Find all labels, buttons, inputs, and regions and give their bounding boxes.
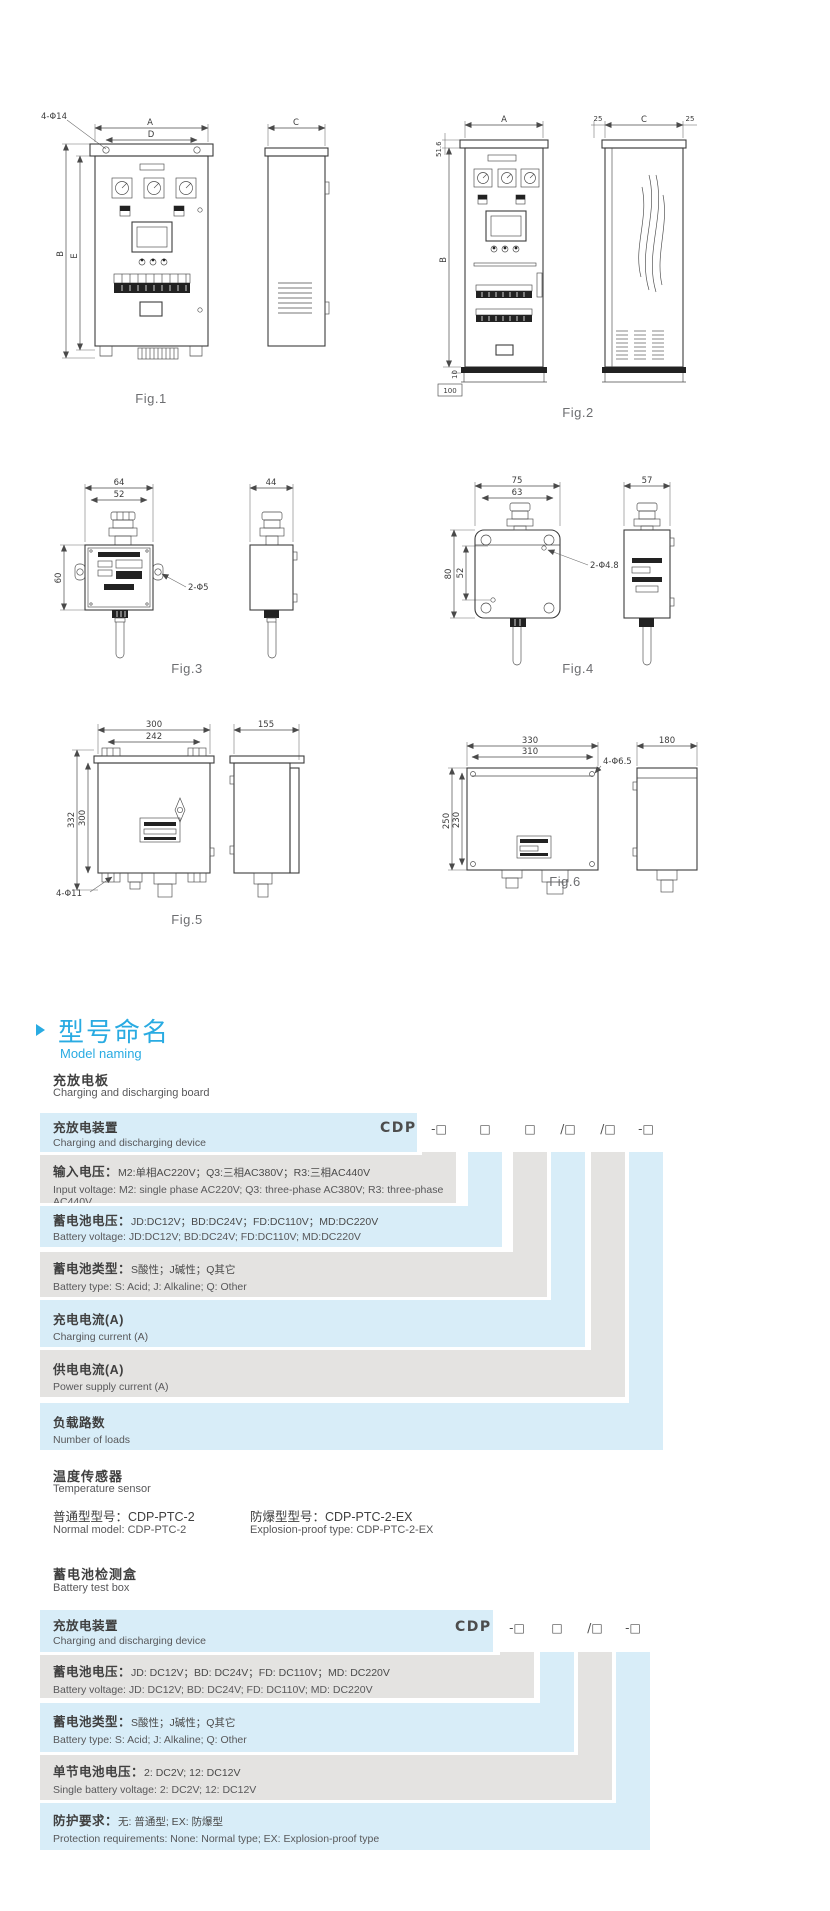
fig1-holes-label: 4-Φ14 [41, 112, 67, 122]
fig2-dim-top: 51.6 [435, 141, 443, 157]
board-row-loads: 负载路数 Number of loads [40, 1403, 663, 1450]
fig5-dim-w: 300 [146, 720, 162, 730]
fig4-dim-h: 80 [444, 569, 454, 580]
row-label-cn: 充电电流(A) [53, 1309, 585, 1328]
fig1-side-view: C [265, 118, 329, 346]
testbox-row-single-battery-voltage: 单节电池电压：2: DC2V; 12: DC12V Single battery… [40, 1755, 612, 1800]
board-code-symbol-4: /□ [554, 1122, 582, 1136]
row-label-en: Battery type: S: Acid; J: Alkaline; Q: O… [53, 1281, 547, 1293]
board-row-charging-current: 充电电流(A) Charging current (A) [40, 1300, 585, 1347]
testbox-code-symbol-4: -□ [619, 1621, 647, 1635]
ladder-strip [540, 1652, 574, 1703]
fig6-dim-w: 330 [522, 736, 538, 746]
ladder-strip [551, 1152, 585, 1300]
fig2-dim-b: B [439, 257, 449, 263]
fig6-dim-wi: 310 [522, 747, 538, 757]
row-label-en: Charging current (A) [53, 1331, 585, 1343]
row-line-cn: 单节电池电压：2: DC2V; 12: DC12V [53, 1761, 612, 1781]
row-label-cn: 蓄电池类型： [53, 1262, 131, 1276]
fig3-dim-wi: 52 [114, 490, 125, 500]
sensor-ex-model-cn: 防爆型型号：CDP-PTC-2-EX [250, 1506, 413, 1525]
fig4-dim-w: 75 [512, 476, 523, 486]
row-detail-cn: S酸性；J碱性；Q其它 [131, 1264, 235, 1276]
testbox-row-battery-type: 蓄电池类型：S酸性；J碱性；Q其它 Battery type: S: Acid;… [40, 1703, 574, 1752]
fig5-front-view: 300 242 332 300 [56, 720, 214, 899]
fig2-dim-100: 100 [443, 387, 456, 395]
row-line-cn: 输入电压：M2:单相AC220V；Q3:三相AC380V；R3:三相AC440V [53, 1161, 456, 1181]
testbox-code-symbol-1: -□ [503, 1621, 531, 1635]
fig1-panel-meters [112, 178, 196, 198]
ladder-strip [513, 1152, 547, 1252]
fig3-drawing: 64 52 60 [40, 466, 340, 684]
row-label-en: Charging and discharging device [53, 1635, 493, 1647]
fig2-dim-25r: 25 [686, 115, 695, 123]
fig3-dim-w: 64 [114, 478, 125, 488]
row-line-cn: 防护要求：无: 普通型; EX: 防爆型 [53, 1810, 650, 1830]
fig1-front-view: A D 4-Φ14 B E [41, 112, 213, 359]
ladder-strip [468, 1152, 502, 1206]
fig1-dim-a: A [147, 118, 153, 128]
board-code-prefix: CDP [380, 1120, 417, 1136]
fig4-dim-wi: 63 [512, 488, 523, 498]
fig6-caption: Fig.6 [530, 874, 600, 889]
ladder-strip [629, 1152, 663, 1403]
fig1-dim-b: B [56, 251, 66, 257]
fig4-caption: Fig.4 [543, 661, 613, 676]
fig4-dim-side: 57 [642, 476, 653, 486]
board-code-symbol-5: /□ [594, 1122, 622, 1136]
fig4-dim-hi: 52 [456, 568, 466, 579]
row-label-cn: 输入电压： [53, 1165, 118, 1179]
fig6-dim-side: 180 [659, 736, 675, 746]
row-label-cn: 蓄电池电压： [53, 1665, 131, 1679]
fig6-front-view: 330 310 250 230 4-Φ6.5 [442, 736, 632, 894]
fig5-dim-side: 155 [258, 720, 274, 730]
fig6-dim-h: 250 [442, 813, 452, 829]
board-row-battery-voltage: 蓄电池电压：JD:DC12V；BD:DC24V；FD:DC110V；MD:DC2… [40, 1206, 502, 1247]
fig2-caption: Fig.2 [543, 405, 613, 420]
board-row-battery-type: 蓄电池类型：S酸性；J碱性；Q其它 Battery type: S: Acid;… [40, 1252, 547, 1297]
fig4-drawing: 75 63 80 52 2-Φ [352, 466, 700, 684]
row-line-cn: 蓄电池类型：S酸性；J碱性；Q其它 [53, 1258, 547, 1278]
fig3-side-view: 44 [250, 478, 297, 658]
row-label-cn: 供电电流(A) [53, 1359, 625, 1378]
row-detail-cn: 2: DC2V; 12: DC12V [144, 1767, 241, 1779]
board-row-supply-current: 供电电流(A) Power supply current (A) [40, 1350, 625, 1397]
board-heading-en: Charging and discharging board [53, 1087, 210, 1099]
fig6-holes-label: 4-Φ6.5 [603, 757, 632, 767]
board-code-symbol-3: □ [516, 1122, 544, 1136]
row-label-cn: 蓄电池类型： [53, 1715, 131, 1729]
fig5-dim-wi: 242 [146, 732, 162, 742]
sensor-heading-en: Temperature sensor [53, 1483, 151, 1495]
fig5-side-view: 155 [230, 720, 304, 897]
fig5-holes-label: 4-Φ11 [56, 889, 82, 899]
sensor-normal-model-cn: 普通型型号：CDP-PTC-2 [53, 1506, 195, 1525]
ladder-strip [578, 1652, 612, 1755]
section-title-cn: 型号命名 [58, 1012, 170, 1049]
fig5-dim-hi: 300 [78, 810, 88, 826]
row-label-en: Battery type: S: Acid; J: Alkaline; Q: O… [53, 1734, 574, 1746]
fig2-dim-25l: 25 [594, 115, 603, 123]
row-label-en: Battery voltage: JD: DC12V; BD: DC24V; F… [53, 1684, 534, 1696]
testbox-code-prefix: CDP [455, 1619, 492, 1635]
datasheet-page: A D 4-Φ14 B E [0, 0, 830, 1911]
board-code-symbol-2: □ [471, 1122, 499, 1136]
row-label-en: Single battery voltage: 2: DC2V; 12: DC1… [53, 1784, 612, 1796]
testbox-code-symbol-2: □ [543, 1621, 571, 1635]
fig2-front-view: A 51.6 B 10 100 [435, 115, 548, 396]
ladder-strip [591, 1152, 625, 1350]
fig1-caption: Fig.1 [116, 391, 186, 406]
fig5-dim-h: 332 [67, 812, 77, 828]
row-detail-cn: 无: 普通型; EX: 防爆型 [118, 1816, 223, 1828]
fig2-dim-c: C [641, 115, 647, 125]
row-label-en: Battery voltage: JD:DC12V; BD:DC24V; FD:… [53, 1231, 502, 1243]
fig5-drawing: 300 242 332 300 [28, 698, 368, 926]
row-label-en: Power supply current (A) [53, 1381, 625, 1393]
row-detail-cn: S酸性；J碱性；Q其它 [131, 1717, 235, 1729]
row-label-en: Protection requirements: None: Normal ty… [53, 1833, 650, 1845]
row-detail-cn: JD: DC12V；BD: DC24V；FD: DC110V；MD: DC220… [131, 1667, 390, 1679]
board-code-symbol-1: -□ [425, 1122, 453, 1136]
fig6-drawing: 330 310 250 230 4-Φ6.5 [352, 726, 702, 906]
section-title-en: Model naming [60, 1046, 142, 1061]
row-label-en: Charging and discharging device [53, 1137, 417, 1149]
fig1-dim-c: C [293, 118, 299, 128]
fig3-dim-h: 60 [54, 573, 64, 584]
fig4-holes-label: 2-Φ4.8 [590, 561, 619, 571]
fig3-holes-label: 2-Φ5 [188, 583, 209, 593]
row-detail-cn: JD:DC12V；BD:DC24V；FD:DC110V；MD:DC220V [131, 1216, 378, 1228]
testbox-row-protection: 防护要求：无: 普通型; EX: 防爆型 Protection requirem… [40, 1803, 650, 1850]
fig6-dim-hi: 230 [452, 812, 462, 828]
board-code-symbol-6: -□ [632, 1122, 660, 1136]
row-label-cn: 蓄电池电压： [53, 1214, 131, 1228]
sensor-ex-model-en: Explosion-proof type: CDP-PTC-2-EX [250, 1524, 433, 1536]
fig2-panel-meters [474, 169, 539, 187]
row-label-en: Input voltage: M2: single phase AC220V; … [53, 1184, 456, 1203]
testbox-row-device: 充放电装置 Charging and discharging device [40, 1610, 493, 1652]
row-line-cn: 蓄电池电压：JD:DC12V；BD:DC24V；FD:DC110V；MD:DC2… [53, 1210, 502, 1230]
row-label-cn: 负载路数 [53, 1412, 663, 1431]
fig3-dim-side: 44 [266, 478, 277, 488]
ladder-strip [616, 1652, 650, 1803]
fig1-dim-d: D [148, 130, 155, 140]
fig2-dim-10: 10 [451, 370, 459, 379]
section-arrow-icon [36, 1024, 45, 1036]
row-label-cn: 充放电装置 [53, 1615, 493, 1634]
row-label-en: Number of loads [53, 1434, 663, 1446]
fig3-front-view: 64 52 60 [54, 478, 209, 658]
fig2-drawing: A 51.6 B 10 100 [350, 95, 700, 430]
fig1-dim-e: E [70, 253, 80, 258]
row-detail-cn: M2:单相AC220V；Q3:三相AC380V；R3:三相AC440V [118, 1167, 370, 1179]
sensor-normal-model-en: Normal model: CDP-PTC-2 [53, 1524, 186, 1536]
fig3-caption: Fig.3 [152, 661, 222, 676]
testbox-heading-en: Battery test box [53, 1582, 129, 1594]
testbox-heading-cn: 蓄电池检测盒 [53, 1564, 137, 1583]
testbox-row-battery-voltage: 蓄电池电压：JD: DC12V；BD: DC24V；FD: DC110V；MD:… [40, 1655, 534, 1698]
fig2-dim-a: A [501, 115, 507, 125]
board-row-input-voltage: 输入电压：M2:单相AC220V；Q3:三相AC380V；R3:三相AC440V… [40, 1155, 456, 1203]
fig4-front-view: 75 63 80 52 2-Φ [444, 476, 619, 665]
board-row-device: 充放电装置 Charging and discharging device [40, 1113, 417, 1152]
testbox-code-symbol-3: /□ [581, 1621, 609, 1635]
fig4-side-view: 57 [624, 476, 674, 665]
fig5-caption: Fig.5 [152, 912, 222, 927]
row-label-cn: 充放电装置 [53, 1117, 417, 1136]
row-label-cn: 单节电池电压： [53, 1765, 144, 1779]
row-line-cn: 蓄电池类型：S酸性；J碱性；Q其它 [53, 1711, 574, 1731]
row-label-cn: 防护要求： [53, 1814, 118, 1828]
fig2-side-view: 25 C 25 [591, 115, 697, 382]
fig1-drawing: A D 4-Φ14 B E [40, 98, 370, 408]
row-line-cn: 蓄电池电压：JD: DC12V；BD: DC24V；FD: DC110V；MD:… [53, 1661, 534, 1681]
fig6-side-view: 180 [633, 736, 697, 892]
